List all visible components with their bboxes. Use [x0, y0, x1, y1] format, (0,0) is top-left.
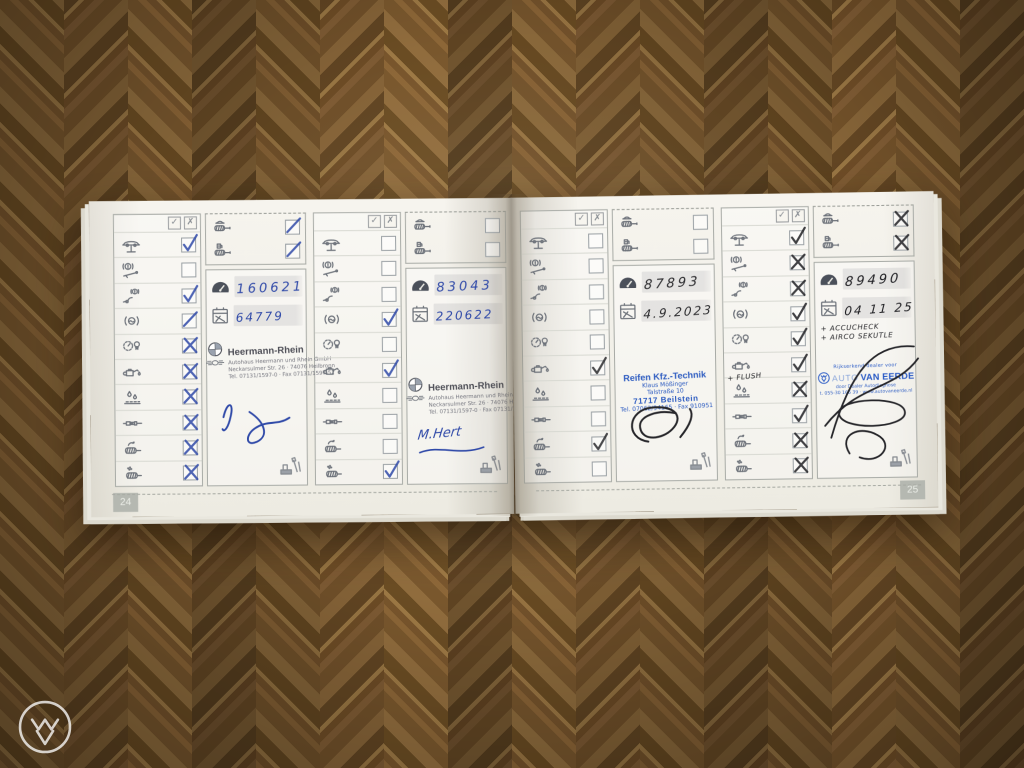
- checklist-row: [315, 357, 401, 383]
- signature-scribble: [211, 397, 307, 456]
- pollen-filter-icon: [530, 460, 554, 479]
- pen-mark-cross: [892, 232, 910, 250]
- checklist-row: [315, 382, 401, 408]
- pen-mark-cross: [181, 336, 199, 354]
- date-row: 64779: [207, 299, 306, 329]
- checklist-row: + FLUSH: [724, 377, 810, 404]
- checklist-row: [115, 308, 201, 334]
- checklist-strip: ✓✗: [313, 212, 403, 486]
- checklist-row: [725, 453, 811, 480]
- checklist-legend: ✓✗: [521, 210, 607, 228]
- exhaust-emission-petrol-icon: [411, 216, 435, 235]
- checklist-row: [722, 249, 808, 276]
- checkbox: [181, 288, 196, 303]
- exhaust-emission-diesel-icon: [819, 234, 843, 253]
- page-number-tab-right: 25: [900, 480, 925, 499]
- checkbox: [591, 411, 606, 426]
- workshop-stamp-vaneerde: Rijkserkend dealer voorAUTOVAN EERDEdoor…: [817, 362, 913, 396]
- bmw-roundel-icon: [407, 377, 423, 393]
- exhaust-emission-diesel-icon: [618, 237, 642, 256]
- odometer-value: 160621: [236, 279, 304, 297]
- odometer-icon: [209, 278, 231, 295]
- checkbox: [591, 436, 606, 451]
- checkbox: [590, 385, 605, 400]
- checklist-row: [315, 331, 401, 357]
- pollen-filter-icon: [121, 464, 145, 483]
- spark-plugs-icon: [729, 407, 753, 426]
- entry-panel: 83043220622Heermann-RheinAutohaus Heerma…: [405, 211, 508, 485]
- checklist-strip: ✓✗: [113, 213, 203, 487]
- date-value: 04 11 25: [844, 299, 914, 318]
- booklet-page-right: ✓✗878934.9.2023Reifen Kfz.-TechnikKlaus …: [511, 191, 939, 514]
- checkbox: [791, 382, 806, 397]
- calendar-date-icon: [210, 306, 231, 325]
- service-entry-1: ✓✗16062164779Heermann-RheinAutohaus Heer…: [113, 213, 308, 488]
- stamp-panel: 16062164779Heermann-RheinAutohaus Heerma…: [205, 269, 308, 487]
- legend-cross-icon: ✗: [384, 215, 397, 228]
- checklist-row: [314, 281, 400, 307]
- engine-oil-service-icon: [528, 359, 552, 378]
- checkbox: [383, 439, 398, 454]
- checkbox: [589, 284, 604, 299]
- checkbox: [692, 214, 707, 229]
- odometer-icon: [409, 276, 431, 293]
- checklist-row: [115, 409, 201, 435]
- exhaust-row: [409, 237, 502, 262]
- checklist-row: [314, 255, 400, 281]
- checklist-row: [721, 224, 807, 251]
- checklist-row: [524, 405, 610, 432]
- checklist-row: [116, 435, 202, 461]
- legend-check-icon: ✓: [575, 213, 588, 226]
- leak-check-icon: [120, 388, 144, 407]
- checkbox: [790, 306, 805, 321]
- checklist-strip: ✓✗: [520, 209, 612, 483]
- checklist-row: [522, 278, 608, 305]
- odometer-value: 83043: [436, 278, 493, 295]
- date-value: 64779: [235, 308, 284, 324]
- stamp-brand: Heermann-Rhein: [228, 345, 304, 359]
- brake-fluid-check-icon: [120, 312, 144, 331]
- checkbox: [381, 261, 396, 276]
- exhaust-emission-petrol-icon: [618, 213, 642, 232]
- pen-mark-cross: [790, 379, 808, 397]
- odometer-row: 83043: [406, 268, 505, 298]
- workshop-tools-icon: [279, 457, 303, 481]
- checkbox: [182, 364, 197, 379]
- air-filter-icon: [529, 435, 553, 454]
- checkbox: [382, 337, 397, 352]
- handwritten-notes: + ACCUCHECK+ AIRCO SEKUTLE: [815, 319, 915, 341]
- checklist-row: [522, 303, 608, 330]
- parquet-plank-column: [960, 0, 1024, 768]
- parking-brake-check-icon: [119, 261, 143, 280]
- date-row: 04 11 25: [815, 290, 915, 321]
- checklist-row: [521, 253, 607, 280]
- exhaust-row: [209, 215, 302, 240]
- calendar-date-icon: [410, 304, 431, 323]
- odometer-value: 89490: [844, 271, 901, 290]
- date-value: 4.9.2023: [643, 302, 713, 321]
- checkbox: [285, 243, 300, 258]
- entry-panel: 16062164779Heermann-RheinAutohaus Heerma…: [205, 213, 308, 487]
- legend-cross-icon: ✗: [791, 209, 804, 222]
- odometer-row: 160621: [206, 270, 305, 300]
- pen-mark-cross: [181, 387, 199, 405]
- odometer-icon: [617, 273, 639, 290]
- engine-oil-service-icon: [120, 363, 144, 382]
- brake-fluid-check-icon: [527, 308, 551, 327]
- checkbox: [382, 388, 397, 403]
- pen-mark-cross: [181, 412, 199, 430]
- checkbox: [183, 440, 198, 455]
- publisher-logo-icon: [16, 698, 74, 756]
- leak-check-icon: [528, 384, 552, 403]
- pen-mark-slash: [284, 240, 302, 258]
- tire-pressure-and-lights-icon: [528, 333, 552, 352]
- photo-service-booklet-on-floor: ✓✗16062164779Heermann-RheinAutohaus Heer…: [0, 0, 1024, 768]
- calendar-date-icon: [818, 298, 839, 317]
- pen-mark-cross: [788, 252, 806, 270]
- pen-mark-slash: [284, 216, 302, 234]
- stamp-panel: 878934.9.2023Reifen Kfz.-TechnikKlaus Mö…: [613, 264, 718, 483]
- checklist-strip: ✓✗+ FLUSH: [720, 206, 812, 480]
- stamp-panel: 83043220622Heermann-RheinAutohaus Heerma…: [405, 267, 508, 485]
- signature-scribble: [618, 395, 719, 459]
- workshop-stamp-heermann: Heermann-RheinAutohaus Heermann und Rhei…: [405, 372, 526, 417]
- checklist-row: [725, 427, 811, 454]
- vehicle-on-lift-icon: [119, 236, 143, 255]
- air-filter-icon: [321, 437, 345, 456]
- engine-oil-service-icon: [320, 361, 344, 380]
- legend-check-icon: ✓: [168, 217, 181, 230]
- pen-mark-check: [180, 285, 198, 303]
- legend-check-icon: ✓: [775, 209, 788, 222]
- pen-mark-cross: [181, 361, 199, 379]
- service-entry-2: ✓✗83043220622Heermann-RheinAutohaus Heer…: [313, 211, 508, 486]
- checkbox: [182, 339, 197, 354]
- stamp-area: Heermann-RheinAutohaus Heermann und Rhei…: [409, 328, 505, 482]
- checklist-row: [115, 333, 201, 359]
- tire-pressure-and-lights-icon: [728, 330, 752, 349]
- checkbox: [790, 331, 805, 346]
- checkbox: [893, 211, 908, 226]
- pen-mark-check: [589, 357, 607, 375]
- checkbox: [381, 236, 396, 251]
- checkbox: [382, 312, 397, 327]
- exhaust-row: [209, 239, 302, 264]
- brake-warning-check-icon: [319, 285, 343, 304]
- checklist-row: [524, 430, 610, 457]
- pen-mark-cross: [788, 278, 806, 296]
- exhaust-check-box: [405, 211, 506, 264]
- pen-mark-check: [180, 234, 198, 252]
- date-row: 4.9.2023: [614, 294, 714, 325]
- air-filter-icon: [121, 439, 145, 458]
- exhaust-emission-petrol-icon: [211, 218, 235, 237]
- odometer-icon: [817, 270, 839, 287]
- checkbox: [182, 415, 197, 430]
- checklist-row: [316, 433, 402, 459]
- pen-mark-check: [790, 354, 808, 372]
- checkbox: [382, 413, 397, 428]
- air-filter-icon: [730, 432, 754, 451]
- exhaust-row: [817, 230, 911, 255]
- workshop-stamp-heermann: Heermann-RheinAutohaus Heermann und Rhei…: [204, 337, 325, 382]
- checklist-row: [315, 408, 401, 434]
- exhaust-check-box: [612, 208, 714, 262]
- checklist-row: [722, 275, 808, 302]
- legend-cross-icon: ✗: [591, 212, 604, 225]
- exhaust-emission-petrol-icon: [818, 210, 842, 229]
- checklist-row: [114, 231, 200, 257]
- checkbox: [485, 242, 500, 257]
- exhaust-check-box: [205, 213, 306, 266]
- pen-mark-check: [789, 328, 807, 346]
- checkbox: [789, 281, 804, 296]
- checkbox: [181, 263, 196, 278]
- pen-mark-check: [789, 303, 807, 321]
- pen-mark-check: [382, 461, 400, 479]
- pen-mark-cross: [892, 208, 910, 226]
- pen-mark-slash: [181, 310, 199, 328]
- checkbox: [893, 235, 908, 250]
- exhaust-row: [616, 210, 710, 235]
- exhaust-row: [816, 206, 910, 231]
- checklist-row: [723, 326, 809, 353]
- checklist-row: [523, 380, 609, 407]
- pen-mark-check: [788, 227, 806, 245]
- checkbox: [183, 466, 198, 481]
- stamp-area: Reifen Kfz.-TechnikKlaus MößingerTalstra…: [617, 325, 715, 479]
- tire-pressure-and-lights-icon: [320, 336, 344, 355]
- exhaust-emission-diesel-icon: [211, 242, 235, 261]
- checklist-legend: ✓✗: [114, 214, 200, 232]
- parking-brake-check-icon: [319, 259, 343, 278]
- pen-mark-cross: [791, 455, 809, 473]
- checkbox: [182, 390, 197, 405]
- parking-brake-check-icon: [526, 257, 550, 276]
- pen-mark-check: [790, 405, 808, 423]
- brake-fluid-check-icon: [320, 310, 344, 329]
- calendar-date-icon: [617, 301, 638, 320]
- vehicle-on-lift-icon: [319, 234, 343, 253]
- checklist-row: [316, 458, 402, 484]
- vehicle-on-lift-icon: [526, 232, 550, 251]
- service-entry-3: ✓✗878934.9.2023Reifen Kfz.-TechnikKlaus …: [520, 208, 718, 484]
- checkbox: [592, 462, 607, 477]
- entry-panel: 878934.9.2023Reifen Kfz.-TechnikKlaus Mö…: [612, 208, 718, 483]
- brake-warning-check-icon: [727, 280, 751, 299]
- pollen-filter-icon: [321, 463, 345, 482]
- spark-plugs-icon: [320, 412, 344, 431]
- odometer-row: 89490: [814, 261, 914, 292]
- checkbox: [588, 258, 603, 273]
- checklist-row: [525, 456, 611, 483]
- checklist-row: [115, 384, 201, 410]
- entry-panel: 8949004 11 25+ ACCUCHECK+ AIRCO SEKUTLER…: [812, 204, 918, 479]
- checklist-row: [314, 230, 400, 256]
- page-number-tab-left: 24: [113, 493, 138, 512]
- odometer-value: 87893: [644, 274, 701, 293]
- checklist-row: [114, 257, 200, 283]
- checkbox: [693, 238, 708, 253]
- brake-warning-check-icon: [119, 286, 143, 305]
- bmw-roundel-icon: [207, 342, 223, 358]
- workshop-tools-icon: [889, 448, 913, 472]
- checkbox: [590, 335, 605, 350]
- checkbox: [789, 230, 804, 245]
- odometer-row: 87893: [614, 265, 714, 296]
- service-booklet: ✓✗16062164779Heermann-RheinAutohaus Heer…: [88, 192, 938, 518]
- legend-cross-icon: ✗: [184, 216, 197, 229]
- stamp-brand: Heermann-Rhein: [428, 380, 504, 394]
- exhaust-emission-diesel-icon: [411, 240, 435, 259]
- pen-mark-cross: [182, 463, 200, 481]
- checklist-row: [114, 282, 200, 308]
- pen-mark-check: [590, 433, 608, 451]
- checkbox: [789, 255, 804, 270]
- service-entry-4: ✓✗+ FLUSH8949004 11 25+ ACCUCHECK+ AIRCO…: [720, 204, 918, 480]
- checklist-row: [523, 354, 609, 381]
- spark-plugs-icon: [120, 413, 144, 432]
- checkbox: [383, 464, 398, 479]
- leak-check-icon: [729, 381, 753, 400]
- checklist-row: [523, 329, 609, 356]
- pen-mark-check: [381, 360, 399, 378]
- wings-logo-icon: [405, 393, 425, 404]
- checkbox: [588, 233, 603, 248]
- workshop-tools-icon: [479, 455, 503, 479]
- checkbox: [381, 286, 396, 301]
- wings-logo-icon: [205, 358, 225, 369]
- brake-warning-check-icon: [527, 283, 551, 302]
- checklist-row: [723, 300, 809, 327]
- checkbox: [285, 219, 300, 234]
- pen-mark-check: [381, 309, 399, 327]
- date-row: 220622: [407, 297, 506, 327]
- stamp-area: Rijkserkend dealer voorAUTOVAN EERDEdoor…: [817, 342, 915, 476]
- workshop-stamp-reifen: Reifen Kfz.-TechnikKlaus MößingerTalstra…: [619, 369, 713, 414]
- stamp-area: Heermann-RheinAutohaus Heermann und Rhei…: [209, 330, 305, 484]
- tire-pressure-and-lights-icon: [120, 337, 144, 356]
- checklist-legend: ✓✗: [721, 207, 807, 225]
- checklist-row: [521, 227, 607, 254]
- parking-brake-check-icon: [727, 254, 751, 273]
- vehicle-on-lift-icon: [727, 229, 751, 248]
- checkbox: [589, 309, 604, 324]
- checkbox: [791, 357, 806, 372]
- parquet-plank-column: [0, 0, 64, 768]
- checklist-row: [115, 358, 201, 384]
- spark-plugs-icon: [529, 410, 553, 429]
- checkbox: [792, 458, 807, 473]
- leak-check-icon: [320, 386, 344, 405]
- checklist-row: [315, 306, 401, 332]
- brake-fluid-check-icon: [728, 305, 752, 324]
- checkbox: [485, 218, 500, 233]
- checkbox: [590, 360, 605, 375]
- v-circle-logo-icon: [816, 371, 829, 384]
- checkbox: [791, 408, 806, 423]
- checklist-row: [116, 460, 202, 486]
- exhaust-row: [616, 234, 710, 259]
- workshop-tools-icon: [688, 452, 712, 476]
- booklet-page-left: ✓✗16062164779Heermann-RheinAutohaus Heer…: [89, 198, 514, 517]
- legend-check-icon: ✓: [368, 215, 381, 228]
- pen-mark-cross: [791, 430, 809, 448]
- stamp-panel: 8949004 11 25+ ACCUCHECK+ AIRCO SEKUTLER…: [813, 260, 918, 479]
- checklist-row: [724, 402, 810, 429]
- pen-mark-cross: [182, 437, 200, 455]
- exhaust-check-box: [812, 204, 914, 258]
- checkbox: [382, 363, 397, 378]
- checklist-legend: ✓✗: [314, 213, 400, 231]
- checkbox: [181, 237, 196, 252]
- checkbox: [182, 313, 197, 328]
- date-value: 220622: [435, 307, 493, 323]
- pollen-filter-icon: [730, 457, 754, 476]
- checkbox: [792, 433, 807, 448]
- exhaust-row: [409, 213, 502, 238]
